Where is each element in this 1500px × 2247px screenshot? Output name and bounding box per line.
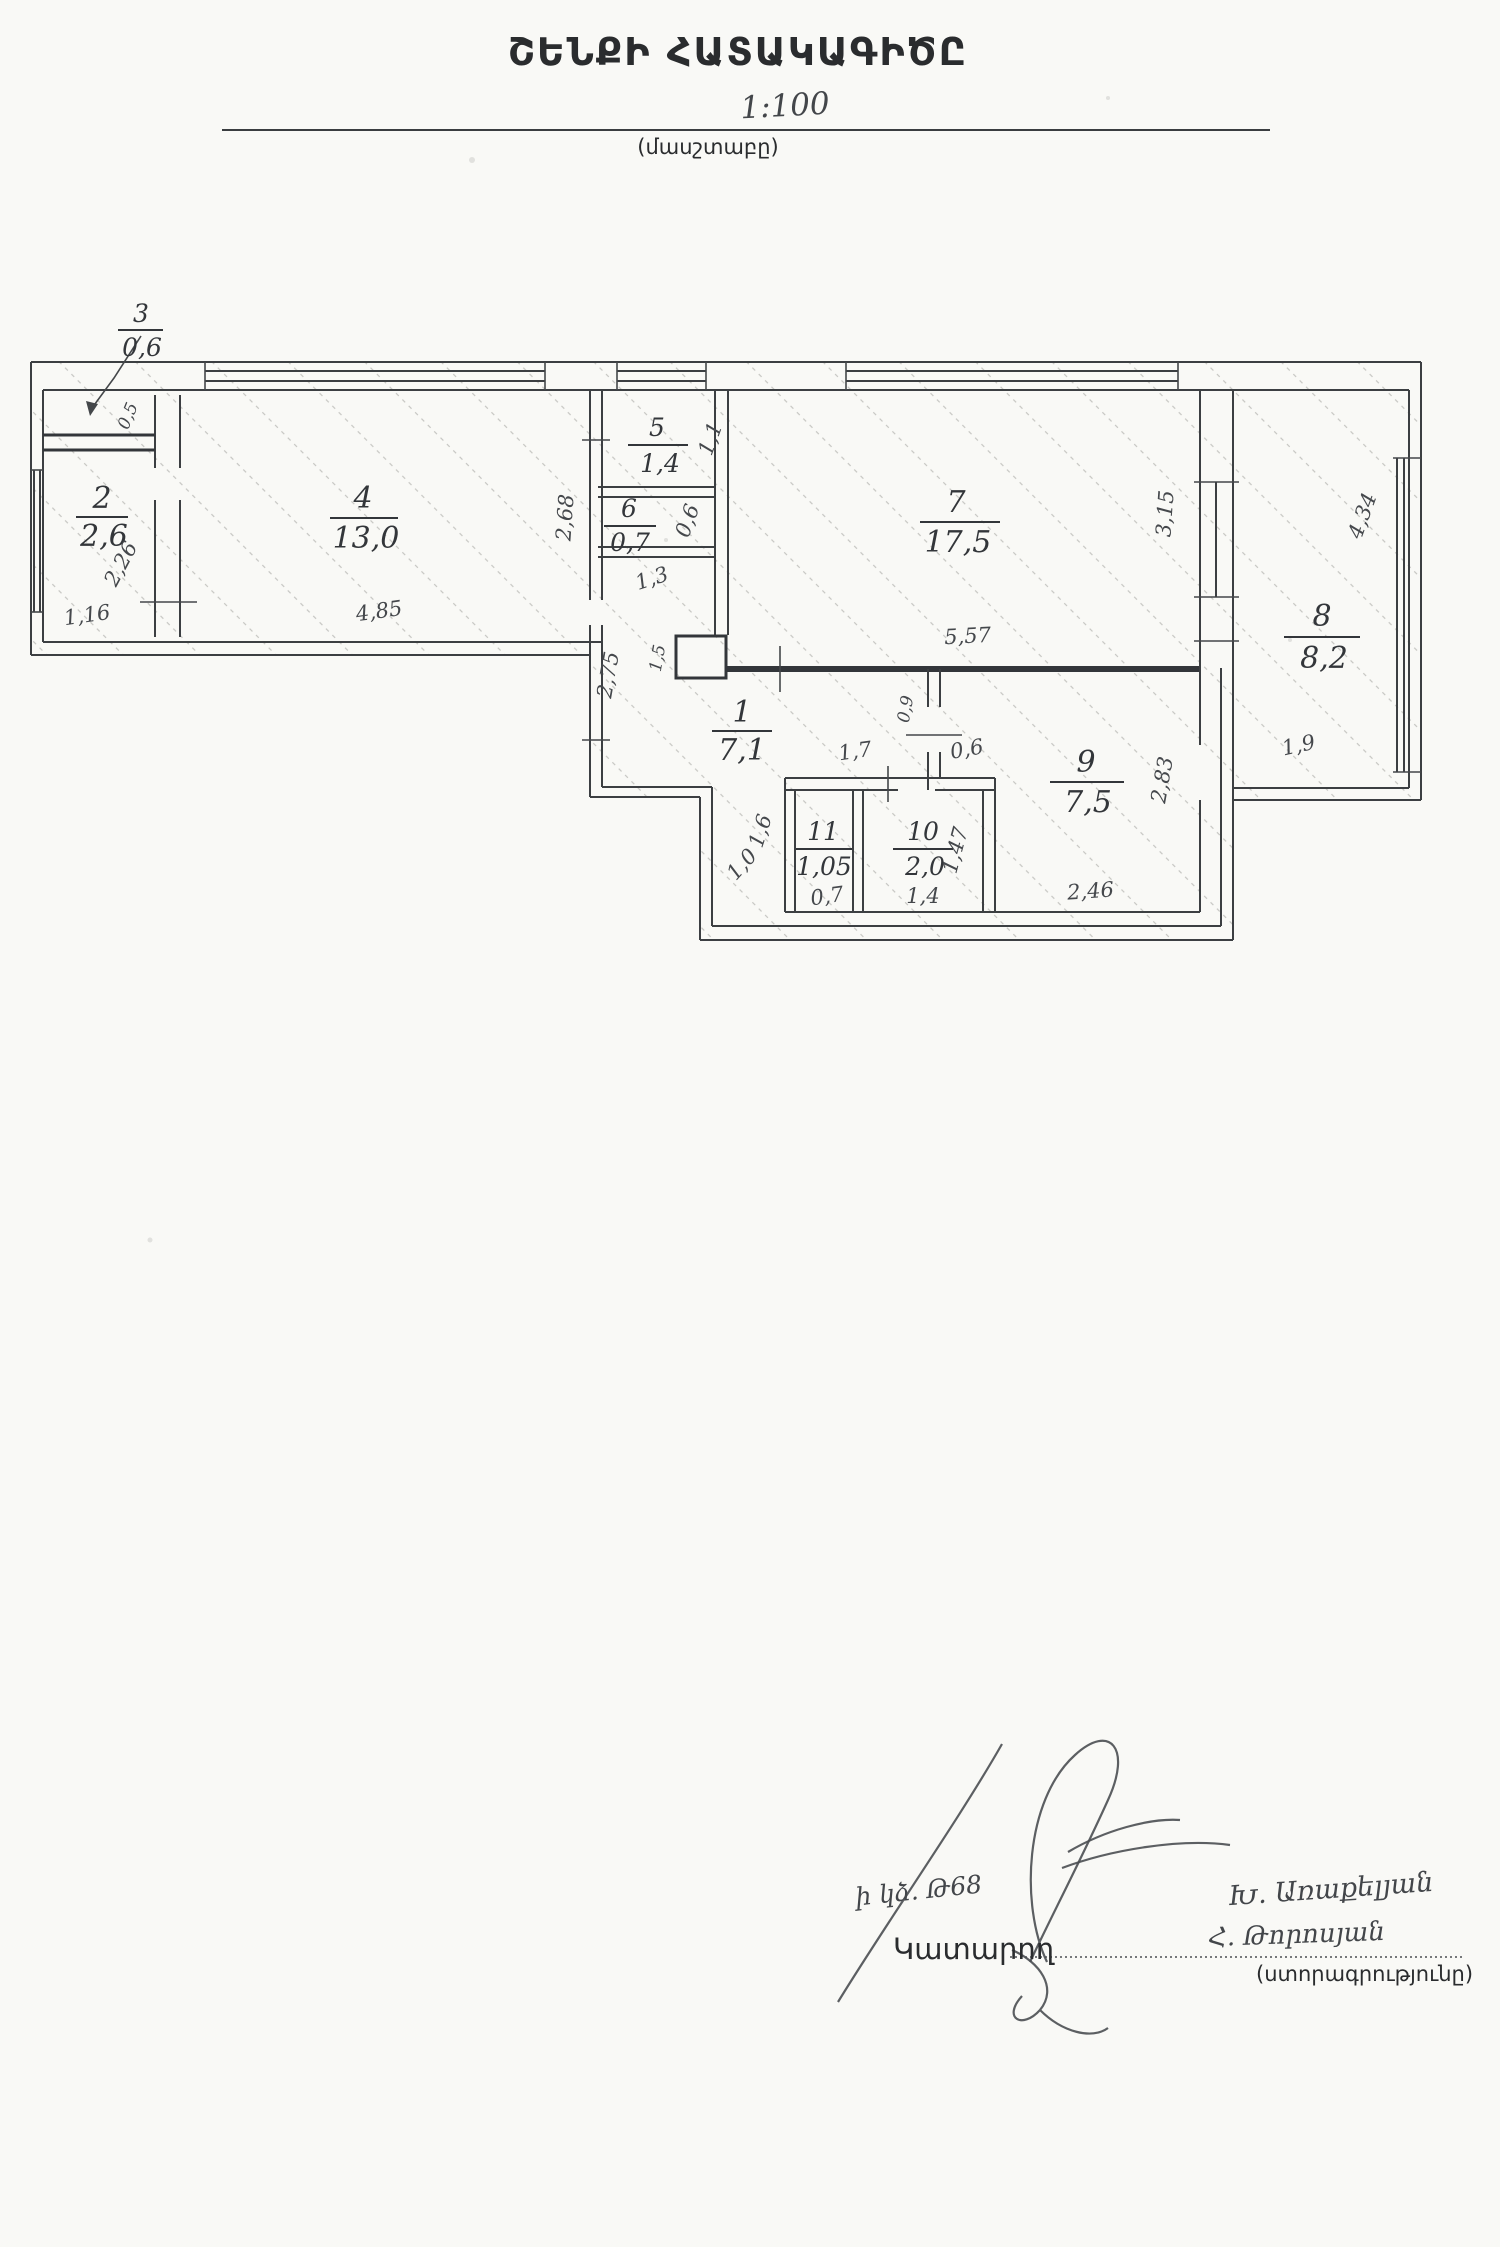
room-5-number: 5 <box>649 413 665 442</box>
room-11-area: 1,05 <box>796 852 852 881</box>
room-3-number: 3 <box>133 299 149 328</box>
signature-caption: (ստորագրությունը) <box>1256 1962 1473 1986</box>
dim-room11-top: 1,7 <box>837 737 874 766</box>
page-title: ՇԵՆՔԻ ՀԱՏԱԿԱԳԻԾԸ <box>508 30 958 74</box>
dim-room9-bottom: 2,46 <box>1065 877 1114 904</box>
scanned-floor-plan-page: 1 7,1 2 2,6 3 0,6 4 13,0 5 1,4 6 0,7 7 1… <box>0 0 1500 2247</box>
room-4-area: 13,0 <box>333 521 400 556</box>
dim-hall-height: 2,68 <box>551 493 578 542</box>
room-11-number: 11 <box>807 817 839 846</box>
room-4-number: 4 <box>352 481 372 516</box>
room-1-area: 7,1 <box>718 733 766 768</box>
room-5-area: 1,4 <box>640 449 680 478</box>
executor-label: Կատարող <box>893 1932 1054 1966</box>
room-6-number: 6 <box>621 494 637 523</box>
room-2-number: 2 <box>91 481 111 516</box>
signature-stroke-loop <box>1030 1741 1118 1962</box>
signature-name-bottom: Հ. Թորոսյան <box>1208 1917 1386 1953</box>
room-6-area: 0,7 <box>610 528 650 557</box>
room-9-area: 7,5 <box>1064 785 1112 820</box>
dim-room7-width: 5,57 <box>944 623 993 649</box>
room-8-area: 8,2 <box>1300 641 1348 676</box>
dim-room11-bottom: 0,7 <box>809 882 846 911</box>
scale-caption: (մասշտաբը) <box>628 135 788 159</box>
room-3-callout: 3 0,6 <box>118 299 163 362</box>
room-8-number: 8 <box>1312 599 1331 634</box>
room-7-area: 17,5 <box>925 525 992 560</box>
room-10-number: 10 <box>907 817 939 846</box>
dim-room10-bottom: 1,4 <box>906 884 939 908</box>
room-7-number: 7 <box>946 485 966 520</box>
floor-plan-drawing: 1 7,1 2 2,6 3 0,6 4 13,0 5 1,4 6 0,7 7 1… <box>0 0 1500 2247</box>
dim-room7-right: 3,15 <box>1151 489 1178 537</box>
room-1-number: 1 <box>732 695 751 730</box>
room-9-number: 9 <box>1076 745 1095 780</box>
room-3-area: 0,6 <box>122 333 162 362</box>
